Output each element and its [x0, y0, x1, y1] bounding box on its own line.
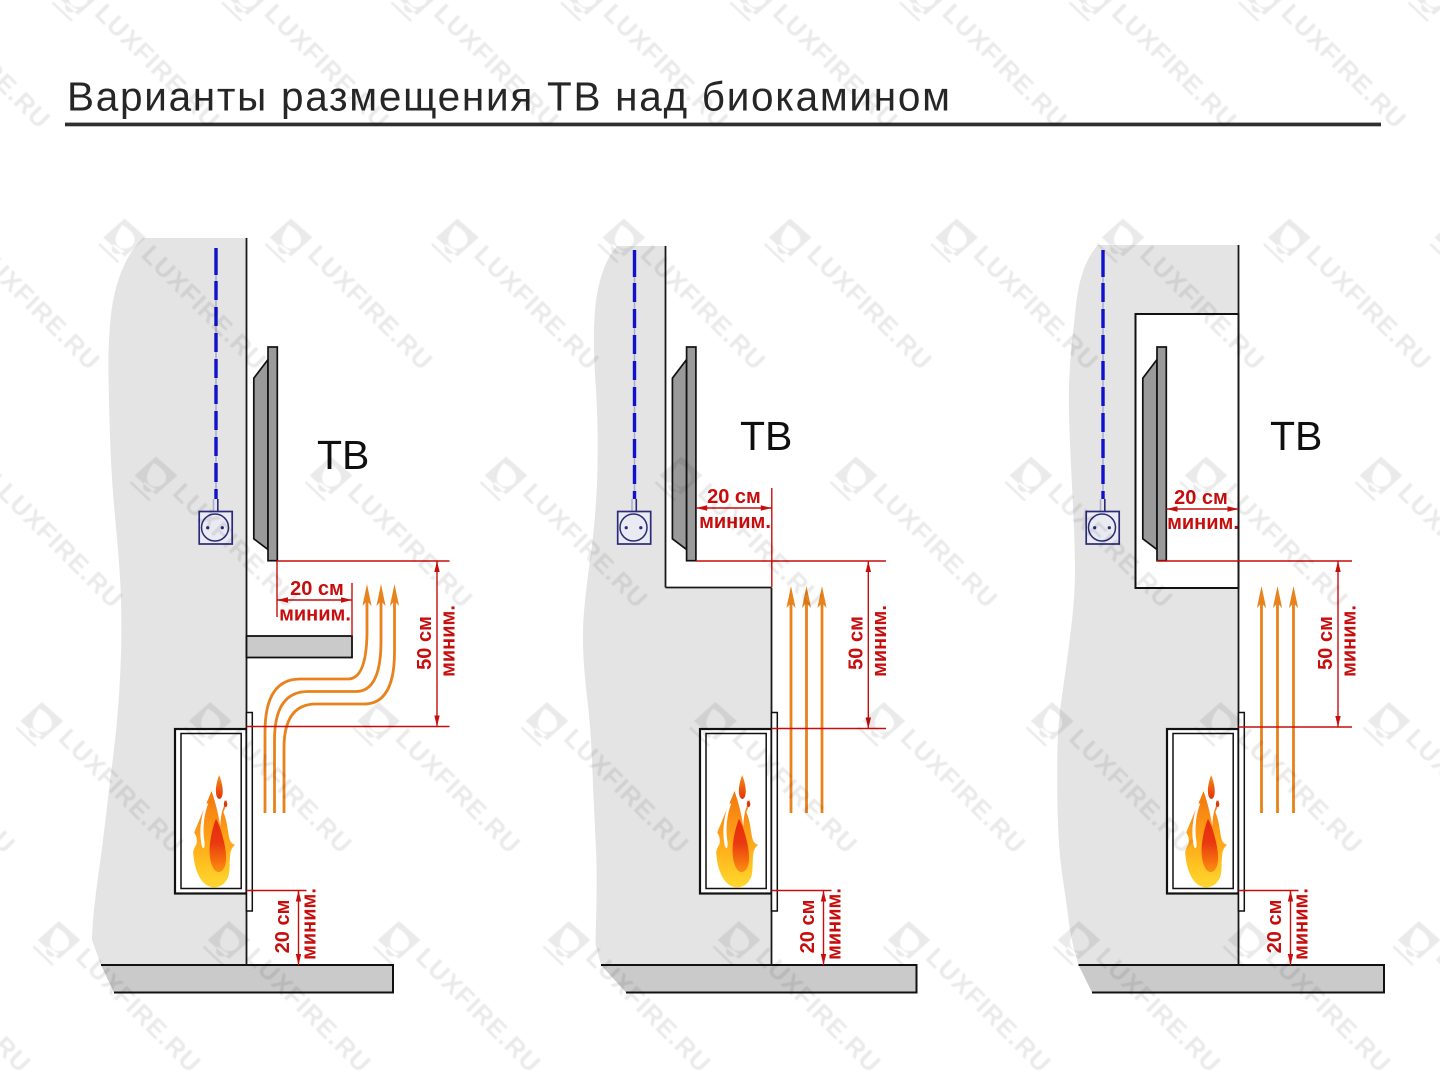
- svg-text:ТВ: ТВ: [740, 413, 792, 459]
- svg-text:миним.: миним.: [869, 605, 891, 677]
- svg-text:миним.: миним.: [1167, 512, 1239, 534]
- svg-text:миним.: миним.: [438, 605, 460, 677]
- svg-text:миним.: миним.: [824, 888, 846, 960]
- svg-text:50 см: 50 см: [414, 616, 436, 670]
- svg-text:миним.: миним.: [1291, 888, 1313, 960]
- svg-text:50 см: 50 см: [846, 616, 868, 670]
- svg-text:миним.: миним.: [1339, 605, 1361, 677]
- svg-text:20 см: 20 см: [272, 900, 294, 954]
- svg-text:50 см: 50 см: [1315, 616, 1337, 670]
- svg-text:миним.: миним.: [299, 888, 321, 960]
- svg-text:20 см: 20 см: [797, 900, 819, 954]
- svg-text:ТВ: ТВ: [1270, 413, 1322, 459]
